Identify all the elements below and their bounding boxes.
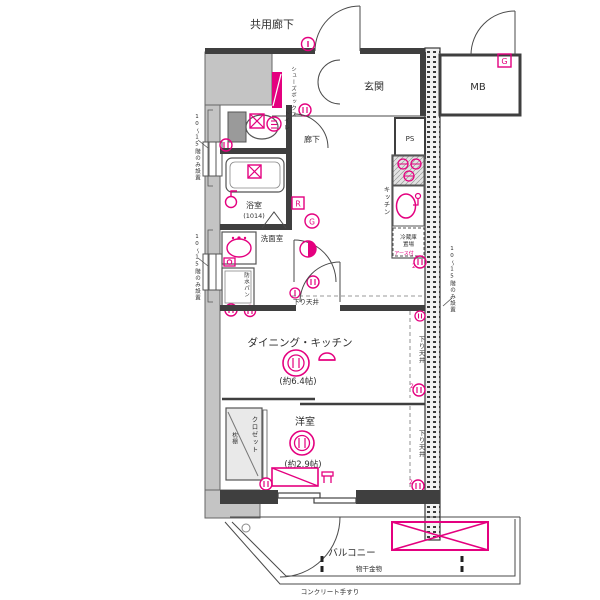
kitchen-label: キッチン xyxy=(382,186,390,216)
svg-text:G: G xyxy=(501,57,507,66)
fridge-label-2: 置場 xyxy=(403,240,415,248)
dropped-ceiling-label-hall: 下り天井 xyxy=(293,297,320,306)
ceiling-light-icon xyxy=(283,350,309,376)
pillow-shelf-label: 枕棚 xyxy=(231,431,238,446)
bathroom-size-label: (1014) xyxy=(243,212,265,220)
switch-icon xyxy=(290,288,300,298)
sliding-window-icon xyxy=(278,493,356,503)
waterproof-pan-label: 防水パン xyxy=(243,271,250,298)
desk-icon xyxy=(272,468,318,486)
vanity-icon xyxy=(222,232,256,264)
outlet-count: 2 xyxy=(409,479,413,486)
bathtub-icon xyxy=(226,158,284,192)
fridge-space: 冷蔵庫 置場 アース付 xyxy=(393,228,424,257)
concrete-handrail-label: コンクリート手すり xyxy=(301,587,360,596)
dropped-ceiling-label-western: 下り天井 xyxy=(418,430,425,458)
room-toilet: トイレ xyxy=(220,105,328,154)
pipe-space-label: PS xyxy=(406,135,415,143)
svg-text:10〜15階のみ設置: 10〜15階のみ設置 xyxy=(449,246,456,313)
floor-plan: 共用廊下 MB G xyxy=(0,0,600,600)
half-circle-icon xyxy=(300,241,316,257)
dropped-ceiling-label-dk: 下り天井 xyxy=(418,336,425,364)
dining-kitchen-size-label: (約6.4帖) xyxy=(279,376,316,387)
svg-text:10〜15階のみ設置: 10〜15階のみ設置 xyxy=(194,114,201,181)
kitchen-counter: キッチン 冷蔵庫 置場 アース付 2 xyxy=(382,155,426,270)
floor-plan-page: 共用廊下 MB G xyxy=(0,0,600,600)
entrance-door xyxy=(205,6,425,54)
gas-outlet-badge: G xyxy=(305,214,319,228)
room-hallway: 廊下 xyxy=(299,104,320,144)
svg-text:R: R xyxy=(295,200,301,209)
wall-light-icon xyxy=(319,353,335,360)
balcony-wall xyxy=(220,490,440,504)
western-room-label: 洋室 xyxy=(295,415,315,428)
remote-badge: R xyxy=(292,197,304,209)
party-wall xyxy=(425,48,440,540)
entrance-label: 玄関 xyxy=(364,80,384,93)
svg-text:10〜15階のみ設置: 10〜15階のみ設置 xyxy=(194,234,201,301)
outlet-icon xyxy=(307,276,319,288)
laundry-fitting-label: 物干金物 xyxy=(356,564,383,573)
room-meter-box: MB G xyxy=(440,11,520,115)
laundry-pole-icon xyxy=(322,556,462,576)
closet-label: クロゼット xyxy=(250,416,258,454)
fridge-outlet-note: アース付 xyxy=(394,250,413,257)
outlet-icon xyxy=(415,311,425,321)
fridge-label-1: 冷蔵庫 xyxy=(400,233,417,241)
outlet-icon: 2 xyxy=(410,383,425,396)
room-entrance: 玄関 シューズボックス xyxy=(272,52,426,118)
floor-note-right: 10〜15階のみ設置 xyxy=(443,246,456,313)
dining-kitchen-label: ダイニング・キッチン xyxy=(248,336,353,349)
meter-box-label: MB xyxy=(470,82,486,93)
common-corridor-label: 共用廊下 xyxy=(250,17,294,31)
hallway-label: 廊下 xyxy=(304,134,320,144)
outlet-count: 2 xyxy=(412,263,416,270)
sliding-partition xyxy=(222,399,425,404)
sink-icon xyxy=(393,186,424,226)
stool-icon xyxy=(322,472,333,483)
balcony: バルコニー 物干金物 コンクリート手すり xyxy=(225,517,520,596)
svg-text:G: G xyxy=(309,218,315,227)
bathroom-label: 浴室 xyxy=(246,200,262,210)
outlet-icon xyxy=(260,478,272,490)
toilet-label: トイレ xyxy=(283,110,290,131)
balcony-label: バルコニー xyxy=(328,548,375,559)
outlet-count: 2 xyxy=(410,383,414,390)
shower-icon xyxy=(226,191,238,208)
room-pipe-space: PS xyxy=(395,118,425,158)
room-western: クロゼット 枕棚 洋室 (約2.9帖) 下り天井 xyxy=(226,406,425,492)
room-dining-kitchen: ダイニング・キッチン (約6.4帖) 下り天井 2 xyxy=(220,305,425,398)
left-wall-window-lower xyxy=(203,254,222,290)
closet: クロゼット 枕棚 xyxy=(226,408,267,480)
left-wall-window-upper xyxy=(203,142,222,176)
washroom-label: 洗面室 xyxy=(261,233,284,243)
drain-icon xyxy=(242,524,250,532)
washer-pan-icon: 防水パン xyxy=(222,268,254,306)
stove-icon xyxy=(393,156,424,185)
room-bathroom: 浴室 (1014) xyxy=(220,154,292,230)
ceiling-light-icon xyxy=(290,431,314,455)
